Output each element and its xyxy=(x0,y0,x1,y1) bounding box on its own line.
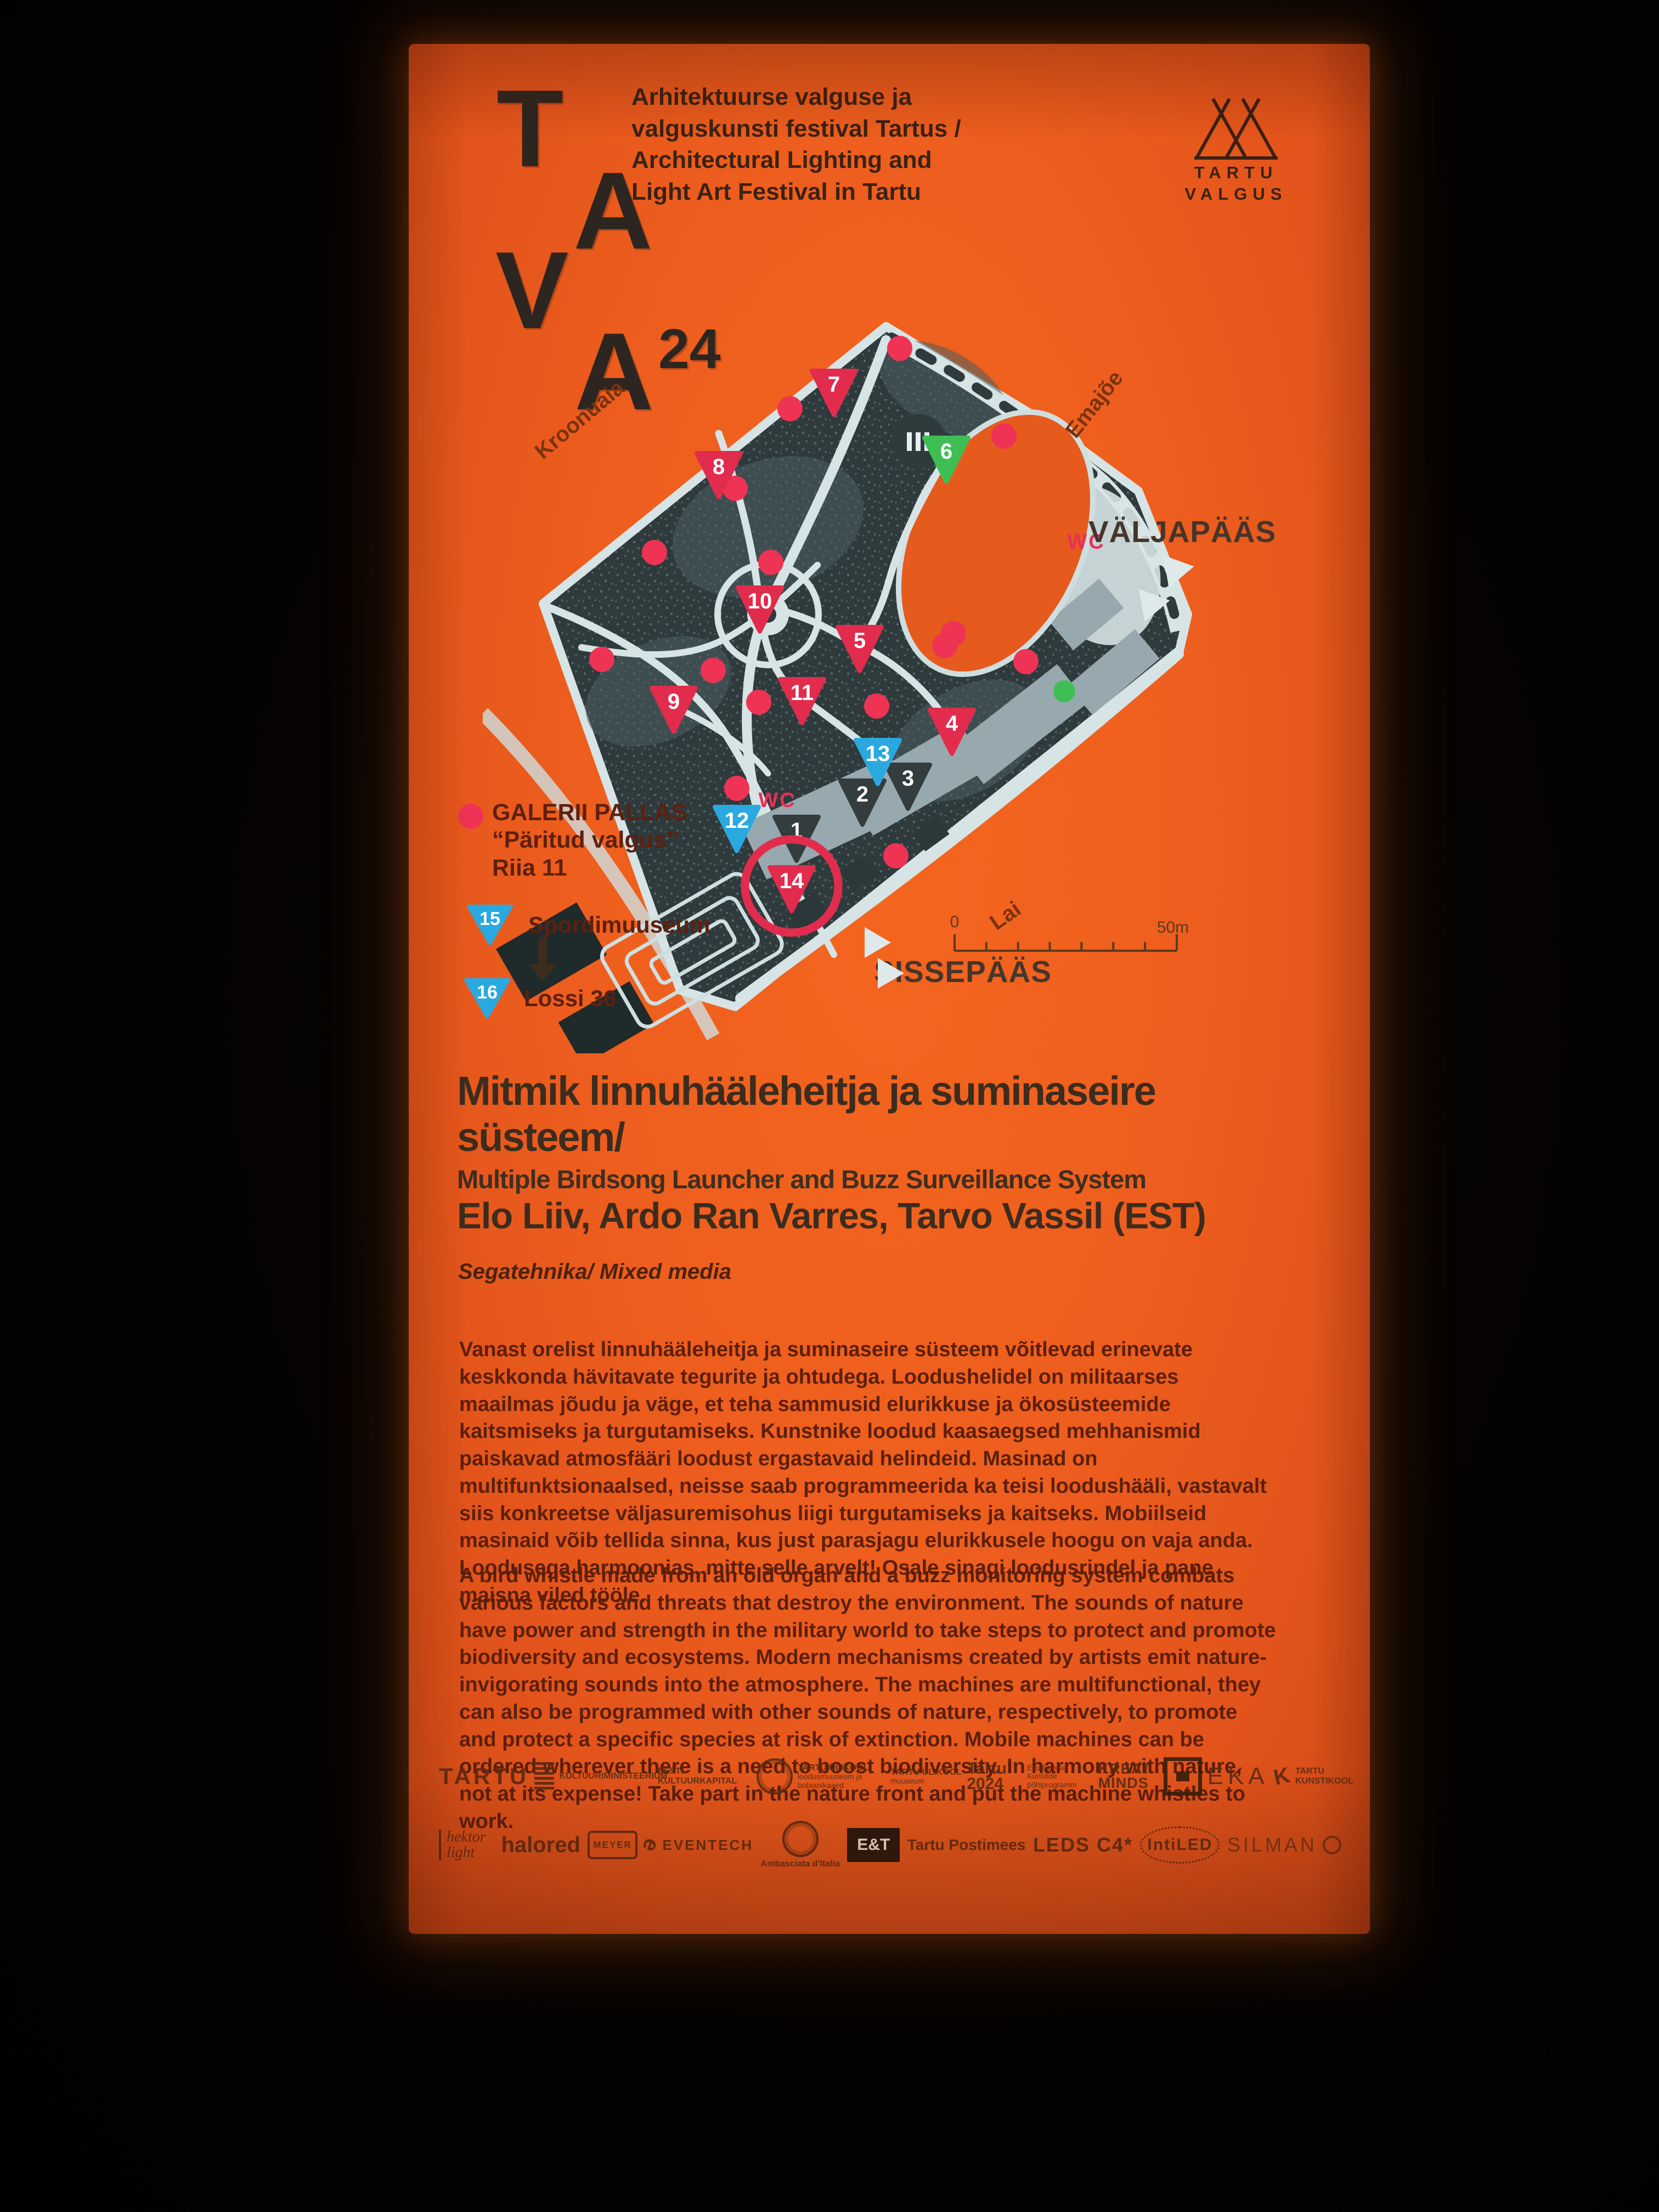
sponsor-label: E&T xyxy=(857,1836,890,1854)
sponsor-logo-silman: SILMAN xyxy=(1227,1833,1341,1857)
park-map: 1234567891011121314KroonuaiaEmajõeLaiWCW… xyxy=(483,307,1317,1053)
legend-gallery-title: GALERII PALLAS xyxy=(492,799,687,826)
wc-label: WC xyxy=(758,789,796,812)
legend-gallery-dot xyxy=(458,804,483,829)
sponsor-logo-eesti-kultuurkapital: EESTI KULTUURKAPITAL xyxy=(658,1767,751,1787)
gallery-location-dot xyxy=(932,633,957,658)
sponsor-label: TARTU ÜLIKOOL xyxy=(798,1763,885,1773)
down-arrow-icon xyxy=(538,937,547,966)
festival-subtitle-line: Architectural Lighting and xyxy=(631,144,983,176)
sponsor-logo-kultuuriministeerium: KULTUURIMINISTEERIUM xyxy=(560,1771,653,1781)
sponsor-label: TARTU KUNSTIKOOL xyxy=(1295,1767,1341,1786)
sponsor-row-2: hektor lighthaloredMEYEReEVENTECHAmbasci… xyxy=(439,1820,1341,1870)
svg-text:11: 11 xyxy=(791,681,814,705)
festival-poster: T A V A 24 Arhitektuurse valguse javalgu… xyxy=(409,44,1370,1934)
sponsor-label: halored xyxy=(501,1833,580,1858)
street-label-lai: Lai xyxy=(985,897,1025,935)
exit-label: VÄLJAPÄÄS xyxy=(1088,515,1276,549)
svg-text:12: 12 xyxy=(725,809,749,833)
legend-marker-16-icon: 16 xyxy=(464,977,511,1019)
street-label-kroonuaia: Kroonuaia xyxy=(531,375,629,464)
legend-gallery-subtitle: “Päritud valgus” xyxy=(492,826,687,854)
tava-letter-t: T xyxy=(496,74,563,184)
tartu-valgus-logo: TARTU VALGUS xyxy=(1170,97,1302,205)
sponsor-label: SILMAN xyxy=(1227,1833,1317,1857)
sponsor-logo-tartu-likool: TARTU ÜLIKOOLmuuseum xyxy=(890,1768,961,1786)
sponsor-label: EKA xyxy=(1207,1763,1269,1790)
sponsor-label: MEYER xyxy=(588,1831,637,1859)
sponsor-logo-tartu-2024: Tartu 2024Ellujäämise Kunstide põhiprogr… xyxy=(967,1761,1093,1792)
sponsor-label: KREAT MINDS xyxy=(1098,1762,1159,1790)
festival-subtitle-line: valguskunsti festival Tartus / xyxy=(631,113,983,145)
sponsor-label: hektor light xyxy=(447,1830,494,1860)
gallery-location-dot xyxy=(746,690,771,715)
photo-background: T A V A 24 Arhitektuurse valguse javalgu… xyxy=(0,0,1659,2212)
sponsor-label: Ambasciata d'Italia xyxy=(761,1859,840,1869)
svg-text:10: 10 xyxy=(748,589,772,613)
sponsor-label: TARTU xyxy=(439,1763,529,1790)
sponsor-sublabel: muuseum xyxy=(890,1777,961,1785)
sponsor-logo-tartu-postimees: Tartu Postimees xyxy=(907,1836,1026,1854)
sponsor-logo-leds-c4-: LEDS C4* xyxy=(1033,1833,1133,1857)
tartu-valgus-mark-icon xyxy=(1187,97,1285,162)
pallas-square-icon xyxy=(1164,1757,1202,1796)
sponsor-logo-kreat-minds: KREAT MINDS xyxy=(1098,1762,1159,1790)
legend-item-15-label: Spordimuuseum xyxy=(528,912,710,938)
sponsor-logo-eka: EKA xyxy=(1207,1763,1269,1790)
silman-ring-icon xyxy=(1323,1836,1341,1854)
sponsor-label: KULTUURIMINISTEERIUM xyxy=(560,1771,653,1781)
festival-subtitle-line: Light Art Festival in Tartu xyxy=(631,176,983,208)
svg-text:7: 7 xyxy=(828,373,840,397)
gallery-location-dot xyxy=(724,776,749,801)
gallery-location-dot xyxy=(589,647,614,672)
artwork-medium: Segatehnika/ Mixed media xyxy=(458,1260,731,1284)
artwork-artists: Elo Liiv, Ardo Ran Varres, Tarvo Vassil … xyxy=(457,1195,1206,1237)
scale-zero: 0 xyxy=(950,913,960,931)
svg-text:8: 8 xyxy=(713,455,725,479)
seal-icon xyxy=(757,1758,793,1795)
svg-text:13: 13 xyxy=(866,742,890,766)
sponsor-logo-hektor-light: hektor light xyxy=(439,1830,494,1860)
gallery-location-dot xyxy=(701,658,726,683)
sponsor-sublabel: Ellujäämise Kunstide põhiprogramm xyxy=(1027,1764,1093,1789)
entrance-arrow-icon xyxy=(865,927,891,958)
sponsor-row-1: TARTUKULTUURIMINISTEERIUMEESTI KULTUURKA… xyxy=(439,1754,1341,1798)
gallery-location-dot xyxy=(864,693,889,719)
sponsor-logo-e-t: E&T xyxy=(847,1828,900,1862)
sponsor-logo-halored: halored xyxy=(501,1833,580,1858)
svg-text:14: 14 xyxy=(780,869,804,893)
sponsor-label: LEDS C4* xyxy=(1033,1833,1133,1857)
artwork-title-en: Multiple Birdsong Launcher and Buzz Surv… xyxy=(457,1164,1146,1194)
festival-subtitle-line: Arhitektuurse valguse ja xyxy=(631,81,983,113)
legend-gallery: GALERII PALLAS “Päritud valgus” Riia 11 xyxy=(492,799,687,882)
sponsor-label: IntiLED xyxy=(1140,1826,1220,1864)
gallery-location-dot xyxy=(991,424,1017,449)
gallery-location-dot xyxy=(642,540,667,565)
sponsor-logo-ambasciata-d-italia: Ambasciata d'Italia xyxy=(761,1821,840,1869)
artwork-title-et-line1: Mitmik linnuhääleheitja ja suminaseire xyxy=(457,1071,1313,1111)
svg-text:16: 16 xyxy=(477,982,498,1003)
sponsor-logo-tartu: TARTU xyxy=(439,1762,554,1791)
svg-text:3: 3 xyxy=(902,766,914,791)
scale-bar: 050m xyxy=(950,913,1189,951)
street-label-emajõe: Emajõe xyxy=(1061,366,1128,442)
sponsor-sublabel: loodusmuuseum ja botaanikaaed xyxy=(798,1773,885,1790)
gallery-location-dot xyxy=(887,336,912,361)
gallery-location-dot xyxy=(1013,649,1039,674)
sponsor-logo-pallas xyxy=(1164,1757,1202,1796)
sponsor-label: EESTI KULTUURKAPITAL xyxy=(658,1767,751,1787)
sponsor-label: Tartu 2024 xyxy=(967,1761,1022,1792)
sponsor-label: Tartu Postimees xyxy=(907,1836,1026,1854)
sponsor-logo-seal xyxy=(757,1758,793,1795)
tartu-city-icon xyxy=(534,1762,554,1791)
sponsor-logo-meyer: MEYER xyxy=(588,1831,637,1859)
legend-item-16-label: Lossi 36 xyxy=(524,985,616,1012)
legend-marker-15-icon: 15 xyxy=(466,903,513,946)
legend-gallery-address: Riia 11 xyxy=(492,854,687,882)
svg-text:9: 9 xyxy=(668,690,680,714)
svg-text:4: 4 xyxy=(946,712,958,736)
tartu-valgus-line1: TARTU xyxy=(1170,162,1302,184)
sponsor-logo-intiled: IntiLED xyxy=(1140,1826,1220,1864)
sponsor-logo-eventech: eEVENTECH xyxy=(645,1833,753,1858)
sponsor-label: EVENTECH xyxy=(663,1837,754,1854)
svg-text:15: 15 xyxy=(479,909,500,929)
eventech-e-icon: e xyxy=(637,1834,664,1855)
green-location-dot xyxy=(1053,680,1075,702)
sponsor-logo-tartu-likool: TARTU ÜLIKOOLloodusmuuseum ja botaanikaa… xyxy=(798,1763,885,1790)
gallery-location-dot xyxy=(883,843,909,868)
tartu-valgus-line2: VALGUS xyxy=(1170,184,1302,205)
seal-icon xyxy=(782,1821,819,1857)
gallery-location-dot xyxy=(777,396,803,421)
svg-text:2: 2 xyxy=(856,782,868,806)
artwork-title-et-line2: süsteem/ xyxy=(457,1117,1313,1158)
gallery-location-dot xyxy=(758,550,783,575)
sponsor-logo-tartu-kunstikool: KTARTU KUNSTIKOOL xyxy=(1274,1764,1341,1789)
scale-max: 50m xyxy=(1157,918,1189,936)
kunstikool-k-icon: K xyxy=(1272,1763,1293,1790)
svg-text:6: 6 xyxy=(940,439,952,464)
sponsor-label: TARTU ÜLIKOOL xyxy=(890,1768,961,1778)
svg-text:5: 5 xyxy=(854,629,866,653)
festival-subtitle: Arhitektuurse valguse javalguskunsti fes… xyxy=(631,81,983,208)
